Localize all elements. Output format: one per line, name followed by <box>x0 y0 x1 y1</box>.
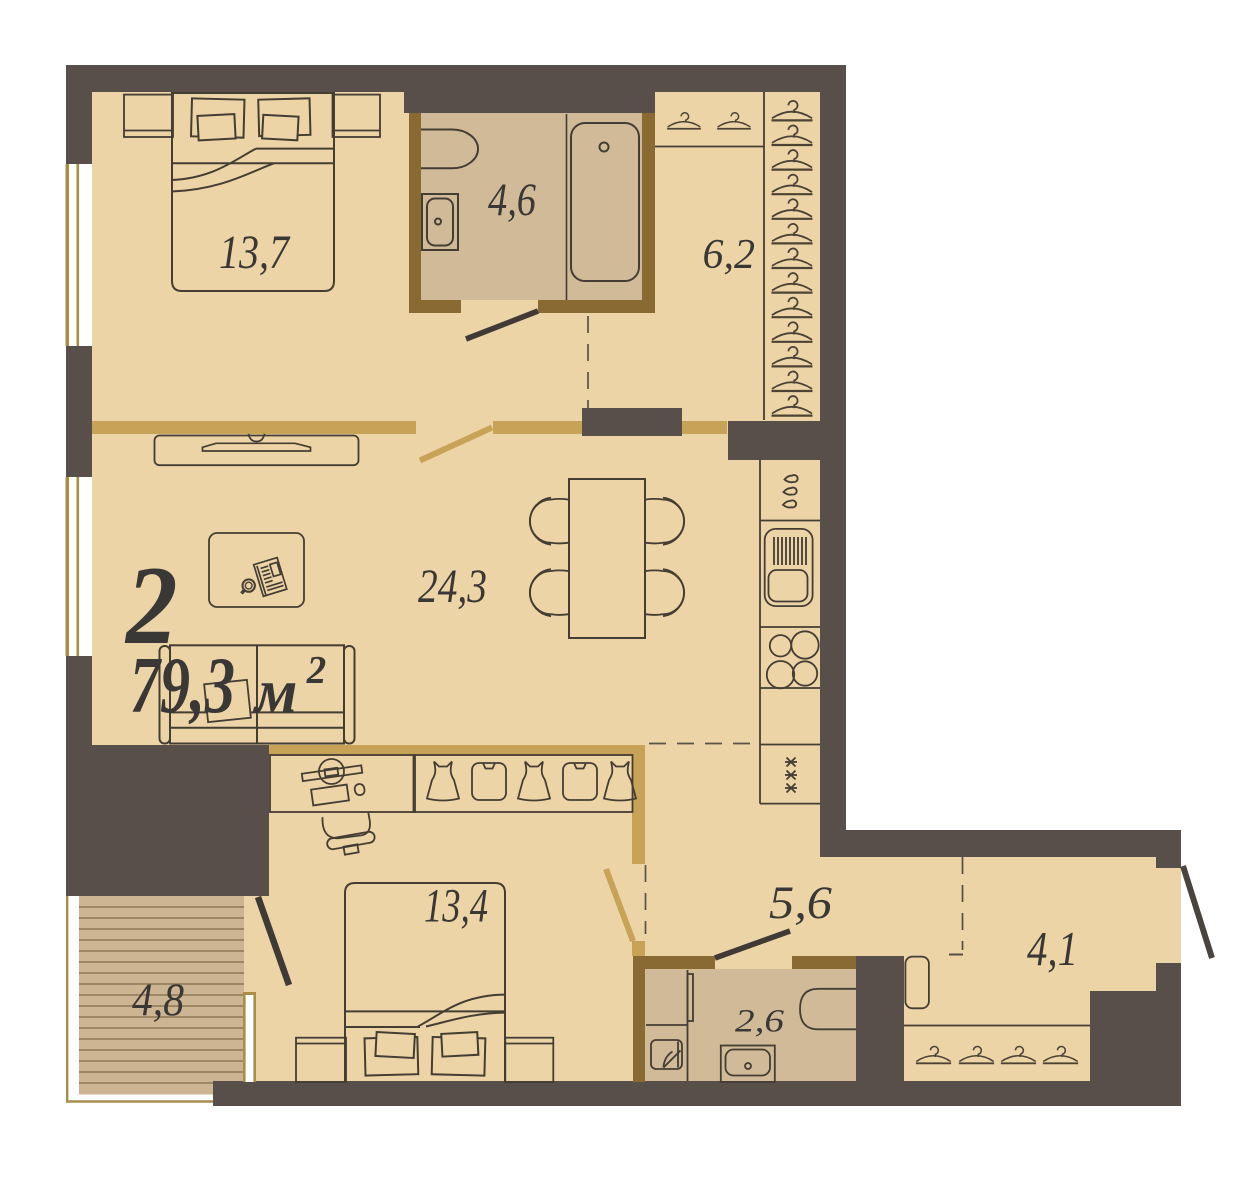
svg-text:79,3: 79,3 <box>130 642 235 730</box>
svg-text:13,4: 13,4 <box>424 880 488 933</box>
svg-text:13,7: 13,7 <box>219 226 291 279</box>
svg-text:2,6: 2,6 <box>735 1004 785 1040</box>
svg-text:4,8: 4,8 <box>132 974 184 1026</box>
svg-text:6,2: 6,2 <box>703 232 756 278</box>
svg-text:м: м <box>252 658 297 726</box>
svg-text:4,6: 4,6 <box>488 174 536 226</box>
svg-text:24,3: 24,3 <box>418 560 487 613</box>
svg-text:2: 2 <box>306 649 327 692</box>
svg-text:5,6: 5,6 <box>769 877 833 929</box>
svg-text:4,1: 4,1 <box>1027 921 1078 976</box>
